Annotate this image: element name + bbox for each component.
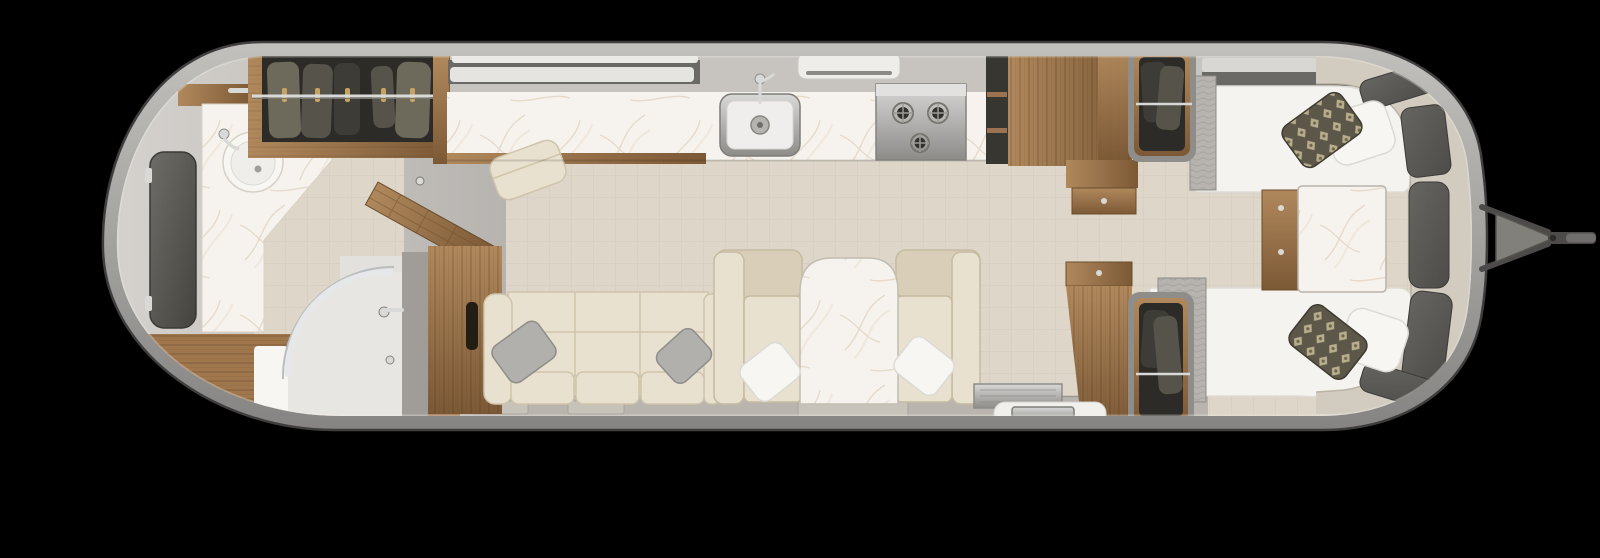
- shower-valve: [386, 356, 394, 364]
- bed-side-panel: [1098, 56, 1128, 160]
- drawer-handle: [1278, 249, 1284, 255]
- front-window-middle: [1409, 182, 1449, 288]
- desk-front-trim: [447, 153, 706, 164]
- dinette-bench-side: [714, 252, 744, 404]
- hitch: [1482, 207, 1596, 269]
- screenshot-stage: [0, 0, 1600, 558]
- sink-drain-hole: [757, 122, 763, 128]
- towel-bar: [228, 88, 250, 93]
- front-bed-table: [1262, 186, 1386, 292]
- drawer-handle: [1278, 205, 1284, 211]
- wardrobe-curb-front: [1128, 46, 1196, 162]
- cooktop-control-strip: [876, 84, 966, 96]
- nightstand-top: [1066, 160, 1138, 188]
- shower-side-wall: [402, 252, 428, 416]
- door-pull-slot: [466, 302, 478, 350]
- cooktop: [876, 84, 966, 160]
- table-marble-top: [1298, 186, 1386, 292]
- sofa-seat-cushion: [576, 372, 639, 404]
- desk-counter: [447, 92, 706, 160]
- burner: [893, 103, 913, 123]
- rear-wardrobe: [248, 46, 450, 158]
- shower-mirror-panel: [150, 152, 196, 328]
- hitch-tongue-tip: [1566, 234, 1596, 243]
- dinette-bench-side: [952, 252, 980, 404]
- door-handle: [416, 177, 424, 185]
- open-shelf-board: [987, 92, 1007, 97]
- dinette-table: [800, 258, 898, 404]
- trailer: [100, 40, 1596, 440]
- overhead-cabinet-door: [450, 67, 694, 82]
- burner: [911, 134, 929, 152]
- floorplan-canvas: [0, 0, 1600, 558]
- shower-rail: [384, 308, 404, 312]
- mirror-hinge: [145, 296, 152, 311]
- mirror-hinge: [145, 168, 152, 183]
- open-shelf-board: [987, 128, 1007, 133]
- wardrobe-end-panel: [433, 56, 449, 164]
- drawer-handle: [1096, 270, 1102, 276]
- open-shelf: [986, 54, 1008, 164]
- interior: [100, 40, 1500, 440]
- vanity-faucet: [219, 129, 229, 139]
- rear-wood-ledge: [178, 84, 252, 106]
- burner: [928, 103, 948, 123]
- range-hood-vent: [806, 71, 892, 75]
- drawer-handle: [1101, 198, 1107, 204]
- wardrobe-road-front: [1128, 292, 1194, 428]
- vanity-drain: [255, 166, 262, 173]
- hitch-coupler: [1550, 235, 1556, 241]
- front-window-upper: [1400, 104, 1452, 179]
- sofa: [484, 292, 720, 404]
- nightstand-curb: [1066, 160, 1138, 214]
- dinette: [714, 250, 980, 405]
